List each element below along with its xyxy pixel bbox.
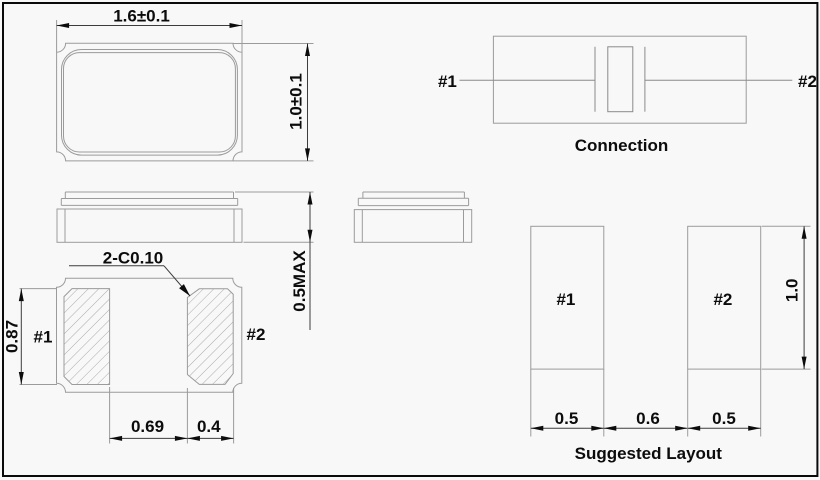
svg-text:#2: #2 [798, 72, 817, 91]
svg-text:2-C0.10: 2-C0.10 [103, 249, 163, 268]
svg-text:1.6±0.1: 1.6±0.1 [113, 7, 170, 26]
svg-text:#1: #1 [438, 72, 457, 91]
svg-text:0.5MAX: 0.5MAX [290, 250, 309, 312]
svg-text:0.69: 0.69 [131, 417, 164, 436]
svg-text:#1: #1 [34, 328, 53, 347]
svg-text:0.5: 0.5 [712, 409, 736, 428]
svg-text:1.0±0.1: 1.0±0.1 [287, 73, 306, 130]
svg-text:0.6: 0.6 [636, 409, 660, 428]
svg-text:0.4: 0.4 [197, 417, 221, 436]
svg-text:#1: #1 [556, 290, 575, 309]
svg-text:1.0: 1.0 [783, 278, 802, 302]
svg-text:#2: #2 [713, 290, 732, 309]
svg-text:Suggested Layout: Suggested Layout [575, 444, 723, 463]
svg-text:0.5: 0.5 [555, 409, 579, 428]
svg-text:0.87: 0.87 [3, 320, 22, 353]
svg-text:#2: #2 [247, 325, 266, 344]
svg-text:Connection: Connection [575, 136, 669, 155]
